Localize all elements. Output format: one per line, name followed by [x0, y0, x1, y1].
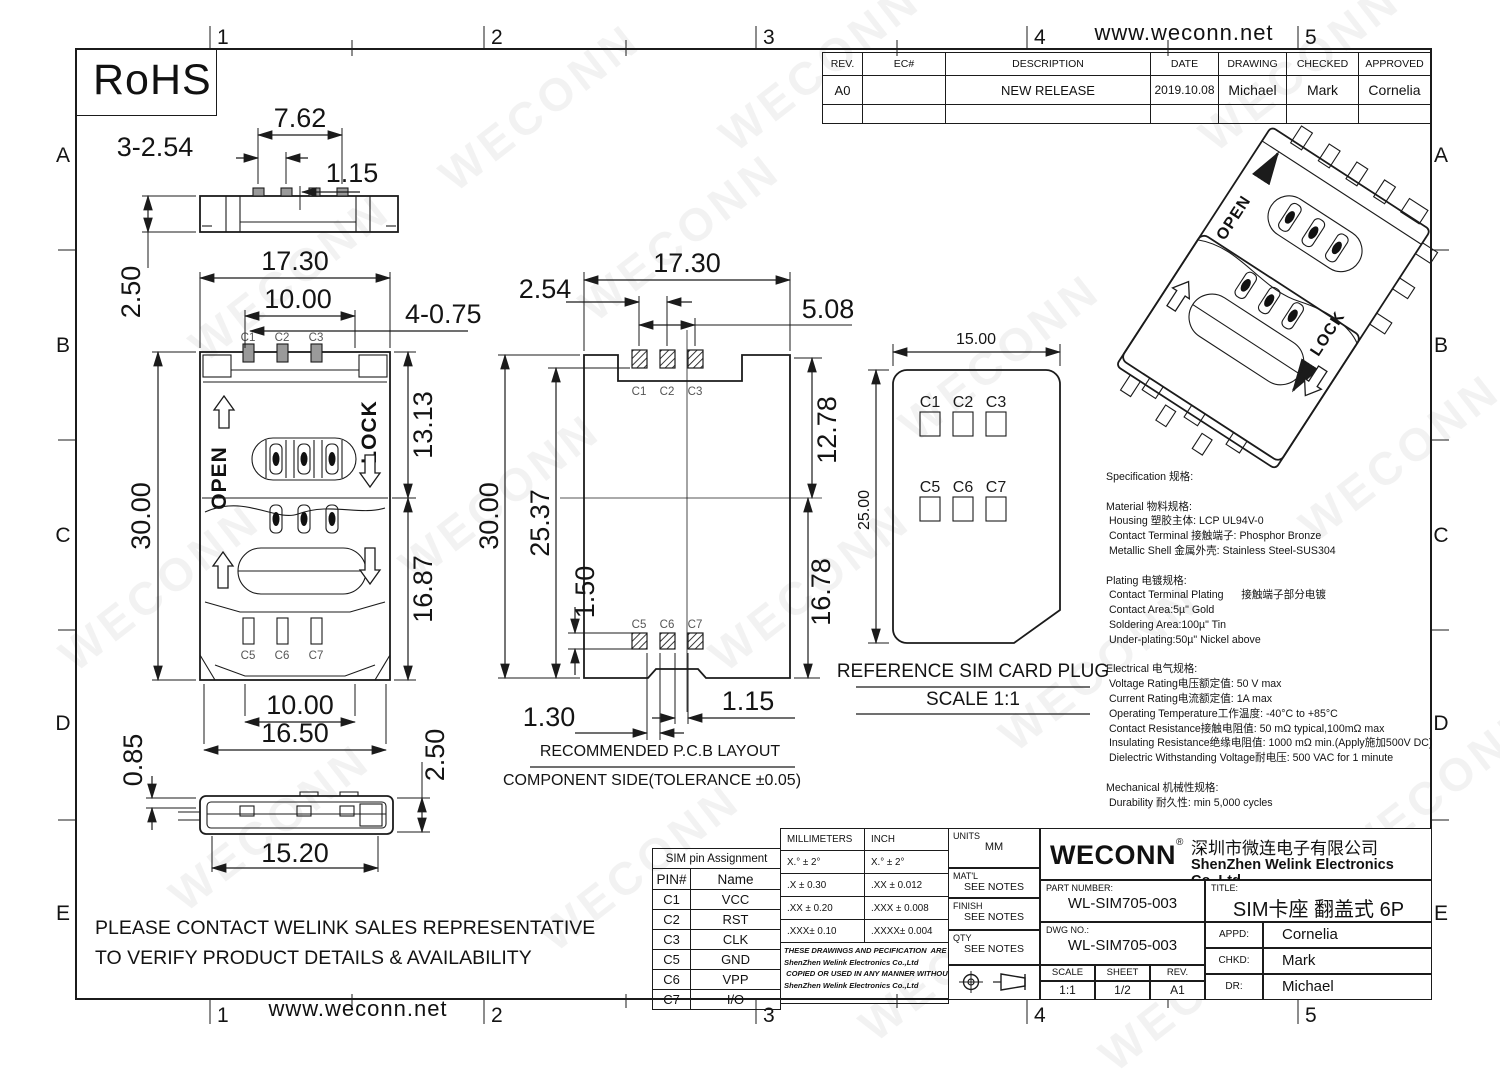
dim-label: 16.78 [806, 558, 836, 626]
mm-tolerance: X.° ± 2° [781, 851, 865, 874]
matl-value: SEE NOTES [949, 881, 1039, 893]
dr-label: DR: [1205, 974, 1263, 1000]
zone-row-label: E [1434, 902, 1448, 925]
zone-col-label: 5 [1305, 1004, 1317, 1027]
pin-id: C5 [653, 950, 691, 970]
finish-label: FINISH [949, 899, 1039, 911]
tolerance-row: .X ± 0.30.XX ± 0.012 [781, 874, 949, 897]
dim-label: 1.15 [326, 158, 379, 188]
ec-value [863, 76, 946, 105]
pin-id: C1 [653, 890, 691, 910]
date-header: DATE [1151, 53, 1219, 76]
dim-label: 5.08 [802, 294, 855, 324]
card-pad-label: C5 [920, 479, 941, 496]
zone-row-label: A [1434, 144, 1448, 167]
dim-label: 15.00 [956, 331, 996, 348]
ec-header: EC# [863, 53, 946, 76]
chkd-label: CHKD: [1205, 948, 1263, 974]
dim-label: 25.37 [525, 489, 555, 557]
dim-label: 17.30 [653, 248, 721, 278]
pin-name: RST [691, 910, 781, 930]
matl-label: MAT'L [949, 869, 1039, 881]
description-header: DESCRIPTION [946, 53, 1151, 76]
info-panel: UNITS MM MAT'L SEE NOTES FINISH SEE NOTE… [948, 828, 1040, 1000]
company-name-cn: 深圳市微连电子有限公司 [1191, 834, 1378, 859]
iso-lock-label: LOCK [1307, 309, 1348, 360]
dim-label: 2.50 [116, 266, 146, 319]
dwg-no-label: DWG NO.: [1041, 923, 1204, 935]
pin-row: C7I/O [653, 990, 781, 1010]
approved-value: Cornelia [1359, 76, 1431, 105]
dim-label: 3-2.54 [117, 132, 194, 162]
pad-label: C6 [660, 619, 675, 631]
pin-name: GND [691, 950, 781, 970]
dim-label: 30.00 [474, 482, 504, 550]
dim-label: 1.15 [722, 686, 775, 716]
zone-row-label: B [1434, 334, 1448, 357]
title-block: WECONN ® 深圳市微连电子有限公司 ShenZhen Welink Ele… [1040, 828, 1432, 1000]
drawing-header: DRAWING [1219, 53, 1287, 76]
zone-col-label: 1 [217, 1004, 229, 1027]
pcb-layout-view: C1 C2 C3 C5 C6 C7 17.30 2.54 5.08 [474, 248, 854, 789]
sheet-value: 1/2 [1095, 981, 1150, 1000]
scale-label: SCALE [1040, 965, 1095, 981]
date-value: 2019.10.08 [1151, 76, 1219, 105]
dim-label: 7.62 [274, 103, 327, 133]
title-label: TITLE: [1206, 881, 1431, 893]
card-subcaption: SCALE 1:1 [926, 689, 1020, 710]
zone-col-label: 3 [763, 26, 775, 49]
dim-label: 25.00 [856, 490, 873, 530]
side-strip-view: 7.62 3-2.54 1.15 2.50 [116, 103, 398, 318]
card-pad-label: C2 [953, 394, 974, 411]
pin-row: C5GND [653, 950, 781, 970]
dim-label: 16.87 [408, 555, 438, 623]
appd-label: APPD: [1205, 922, 1263, 948]
chkd-value: Mark [1263, 948, 1432, 974]
mm-col-header: MILLIMETERS [781, 829, 865, 851]
dim-label: 17.30 [261, 246, 329, 276]
sim-card-view: 15.00 25.00 C1 C2 C3 C5 C6 C7 REFERENCE … [837, 331, 1109, 714]
third-angle-projection-icon [949, 966, 1037, 998]
dwg-no-value: WL-SIM705-003 [1041, 937, 1204, 954]
part-number-label: PART NUMBER: [1041, 881, 1204, 893]
pin-row: C6VPP [653, 970, 781, 990]
pin-name: VCC [691, 890, 781, 910]
pin-name: I/O [691, 990, 781, 1010]
zone-row-label: B [56, 334, 70, 357]
pad-label: C2 [660, 386, 675, 398]
dim-label: 30.00 [126, 482, 156, 550]
qty-value: SEE NOTES [949, 943, 1039, 955]
revision-header-row: REV. EC# DESCRIPTION DATE DRAWING CHECKE… [823, 53, 1431, 76]
registered-mark-icon: ® [1176, 837, 1183, 848]
rev-header: REV. [823, 53, 863, 76]
zone-row-label: C [1433, 524, 1448, 547]
pin-label: C7 [309, 650, 324, 662]
cover-lock-arrow [360, 548, 380, 584]
pin-id: C7 [653, 990, 691, 1010]
scale-value: 1:1 [1040, 981, 1095, 1000]
card-pad-label: C6 [953, 479, 974, 496]
pad-label: C7 [688, 619, 703, 631]
mm-tolerance: .XX ± 0.20 [781, 897, 865, 920]
checked-header: CHECKED [1287, 53, 1359, 76]
qty-label: QTY [949, 931, 1039, 943]
specification-notes: Specification 规格: Material 物料规格: Housing… [1106, 470, 1432, 810]
zone-row-label: E [56, 902, 70, 925]
drawing-sheet: WECONN WECONN WECONN WECONN WECONN WECON… [0, 0, 1500, 1061]
company-header-cell: WECONN ® 深圳市微连电子有限公司 ShenZhen Welink Ele… [1040, 828, 1432, 880]
isometric-view: OPEN LOCK [1101, 112, 1455, 502]
inch-tolerance: .XXX ± 0.008 [865, 897, 949, 920]
zone-row-label: D [55, 712, 70, 735]
sheet-label: SHEET [1095, 965, 1150, 981]
tolerance-row: .XXX± 0.10.XXXX± 0.004 [781, 920, 949, 943]
inch-tolerance: .XXXX± 0.004 [865, 920, 949, 943]
qty-cell: QTY SEE NOTES [948, 930, 1040, 965]
pin-label: C6 [275, 650, 290, 662]
dim-label: 1.30 [523, 702, 576, 732]
pin-name: VPP [691, 970, 781, 990]
pin-col-header: PIN# [653, 869, 691, 890]
pin-id: C3 [653, 930, 691, 950]
zone-col-label: 2 [491, 1004, 503, 1027]
connector-bottom-view: 10.00 16.50 2.50 0.85 15.20 [118, 684, 450, 872]
dwg-no-cell: DWG NO.: WL-SIM705-003 [1040, 922, 1205, 965]
open-arrow [214, 396, 234, 428]
pin-name: CLK [691, 930, 781, 950]
finish-value: SEE NOTES [949, 911, 1039, 923]
dim-label: 0.85 [118, 734, 148, 787]
dim-label: 15.20 [261, 838, 329, 868]
company-logo: WECONN [1050, 840, 1176, 871]
zone-col-label: 4 [1034, 26, 1046, 49]
pin-label: C2 [275, 332, 290, 344]
pin-label: C3 [309, 332, 324, 344]
zone-col-label: 2 [491, 26, 503, 49]
lock-label: LOCK [358, 400, 381, 464]
sim-pin-table: SIM pin Assignment PIN# Name C1VCC C2RST… [652, 848, 781, 1010]
rev-label: REV. [1150, 965, 1205, 981]
contact-note: PLEASE CONTACT WELINK SALES REPRESENTATI… [95, 913, 595, 973]
pad-label: C5 [632, 619, 647, 631]
card-pad-label: C1 [920, 394, 941, 411]
dim-label: 12.78 [812, 396, 842, 464]
open-label: OPEN [208, 446, 231, 510]
dim-label: 13.13 [408, 391, 438, 459]
pcb-caption: RECOMMENDED P.C.B LAYOUT [540, 743, 781, 760]
matl-cell: MAT'L SEE NOTES [948, 868, 1040, 898]
dim-label: 16.50 [261, 718, 329, 748]
mm-tolerance: .XXX± 0.10 [781, 920, 865, 943]
card-pad-label: C3 [986, 394, 1007, 411]
name-col-header: Name [691, 869, 781, 890]
appd-value: Cornelia [1263, 922, 1432, 948]
pin-id: C6 [653, 970, 691, 990]
inch-tolerance: .XX ± 0.012 [865, 874, 949, 897]
card-caption: REFERENCE SIM CARD PLUG [837, 661, 1109, 682]
tolerance-row: .XX ± 0.20.XXX ± 0.008 [781, 897, 949, 920]
rev-value: A1 [1150, 981, 1205, 1000]
projection-cell [948, 965, 1040, 1000]
inch-col-header: INCH [865, 829, 949, 851]
rev-value: A0 [823, 76, 863, 105]
zone-col-label: 5 [1305, 26, 1317, 49]
drawing-value: Michael [1219, 76, 1287, 105]
units-cell: UNITS MM [948, 828, 1040, 868]
tolerance-row: X.° ± 2°X.° ± 2° [781, 851, 949, 874]
dr-value: Michael [1263, 974, 1432, 1000]
pin-label: C5 [241, 650, 256, 662]
pin-table-title: SIM pin Assignment [653, 849, 781, 869]
revision-empty-row [823, 105, 1431, 124]
drawing-title: SIM卡座 翻盖式 6P [1206, 893, 1431, 922]
zone-row-label: C [55, 524, 70, 547]
dim-label: 10.00 [264, 284, 332, 314]
pin-label: C1 [241, 332, 256, 344]
dim-label: 2.54 [519, 274, 572, 304]
inch-tolerance: X.° ± 2° [865, 851, 949, 874]
cover-open-arrow [213, 552, 233, 588]
pad-label: C1 [632, 386, 647, 398]
pin-row: C1VCC [653, 890, 781, 910]
zone-col-label: 4 [1034, 1004, 1046, 1027]
part-number-value: WL-SIM705-003 [1041, 895, 1204, 912]
checked-value: Mark [1287, 76, 1359, 105]
zone-col-label: 1 [217, 26, 229, 49]
pin-id: C2 [653, 910, 691, 930]
pin-row: C3CLK [653, 930, 781, 950]
title-cell: TITLE: SIM卡座 翻盖式 6P [1205, 880, 1432, 922]
finish-cell: FINISH SEE NOTES [948, 898, 1040, 930]
legal-notice: THESE DRAWINGS AND PECIFICATION ARE Weli… [781, 943, 949, 1004]
iso-open-label: OPEN [1213, 193, 1254, 244]
zone-row-label: A [56, 144, 70, 167]
part-number-cell: PART NUMBER: WL-SIM705-003 [1040, 880, 1205, 922]
tolerance-table: MILLIMETERS INCH X.° ± 2°X.° ± 2° .X ± 0… [780, 828, 949, 1004]
mm-tolerance: .X ± 0.30 [781, 874, 865, 897]
dim-label: 10.00 [266, 690, 334, 720]
dim-label: 4-0.75 [405, 299, 482, 329]
pcb-subcaption: COMPONENT SIDE(TOLERANCE ±0.05) [503, 772, 801, 789]
pin-row: C2RST [653, 910, 781, 930]
dim-label: 1.50 [570, 566, 600, 619]
pad-label: C3 [688, 386, 703, 398]
card-pad-label: C7 [986, 479, 1007, 496]
connector-top-view: C1 C2 C3 OPEN LOCK [126, 246, 482, 680]
revision-row: A0 NEW RELEASE 2019.10.08 Michael Mark C… [823, 76, 1431, 105]
revision-table: REV. EC# DESCRIPTION DATE DRAWING CHECKE… [822, 52, 1431, 124]
approved-header: APPROVED [1359, 53, 1431, 76]
dim-label: 2.50 [420, 729, 450, 782]
units-label: UNITS [949, 829, 1039, 841]
units-value: MM [949, 841, 1039, 853]
zone-row-label: D [1433, 712, 1448, 735]
description-value: NEW RELEASE [946, 76, 1151, 105]
